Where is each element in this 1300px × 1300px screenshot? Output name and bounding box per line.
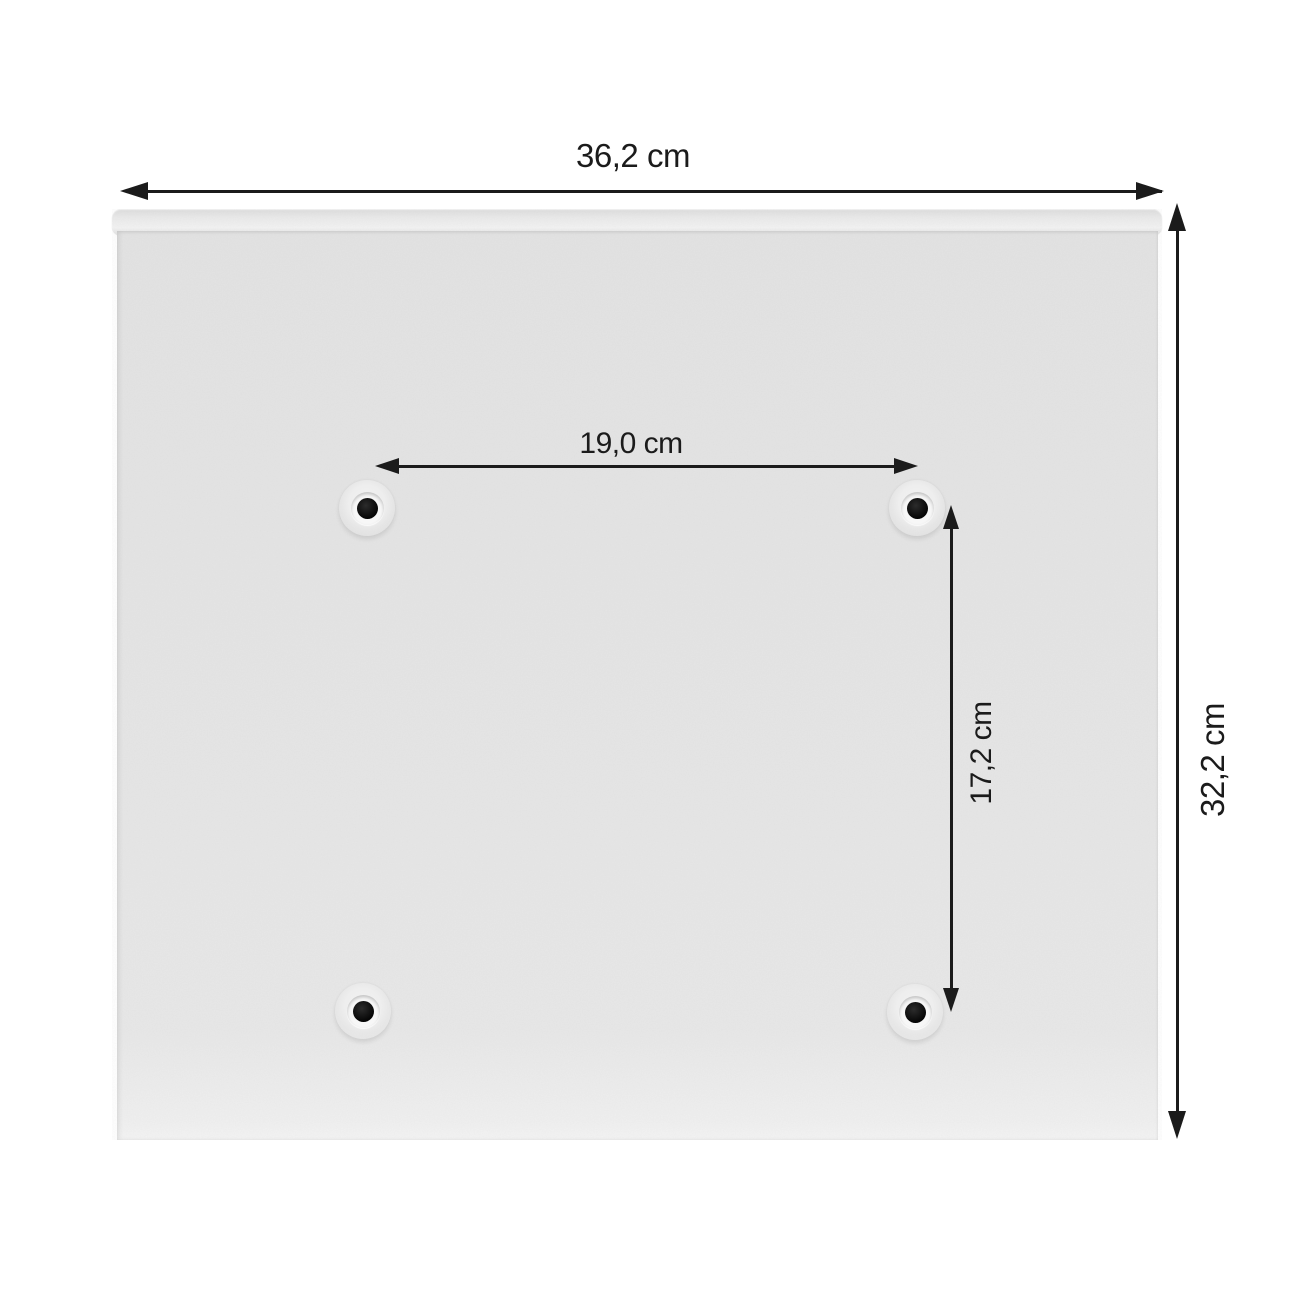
hole-opening (905, 1002, 926, 1023)
arrowhead-left-icon (375, 458, 399, 474)
dimension-diagram: 36,2 cm 32,2 cm 19,0 cm 17,2 cm (0, 0, 1300, 1300)
dimension-label: 19,0 cm (579, 427, 682, 461)
dimension-line (1176, 214, 1179, 1128)
hole-ring (347, 995, 380, 1028)
mounting-hole-top-right (889, 480, 945, 536)
dimension-line (390, 465, 904, 468)
hole-opening (907, 498, 928, 519)
dimension-line (950, 518, 953, 1000)
arrowhead-down-icon (943, 988, 959, 1012)
arrowhead-left-icon (120, 182, 148, 200)
dimension-label: 17,2 cm (965, 701, 999, 804)
arrowhead-up-icon (1168, 203, 1186, 231)
hole-opening (357, 498, 378, 519)
mounting-hole-bottom-right (887, 984, 943, 1040)
dimension-label: 36,2 cm (576, 137, 690, 175)
hole-opening (353, 1001, 374, 1022)
hole-ring (351, 492, 384, 525)
arrowhead-down-icon (1168, 1111, 1186, 1139)
arrowhead-right-icon (894, 458, 918, 474)
mounting-hole-bottom-left (335, 983, 391, 1039)
arrowhead-up-icon (943, 505, 959, 529)
hole-ring (901, 492, 934, 525)
hole-ring (899, 996, 932, 1029)
dimension-line (132, 190, 1162, 193)
arrowhead-right-icon (1136, 182, 1164, 200)
panel-surface (117, 231, 1158, 1140)
mounting-hole-top-left (339, 480, 395, 536)
dimension-label: 32,2 cm (1194, 703, 1232, 817)
